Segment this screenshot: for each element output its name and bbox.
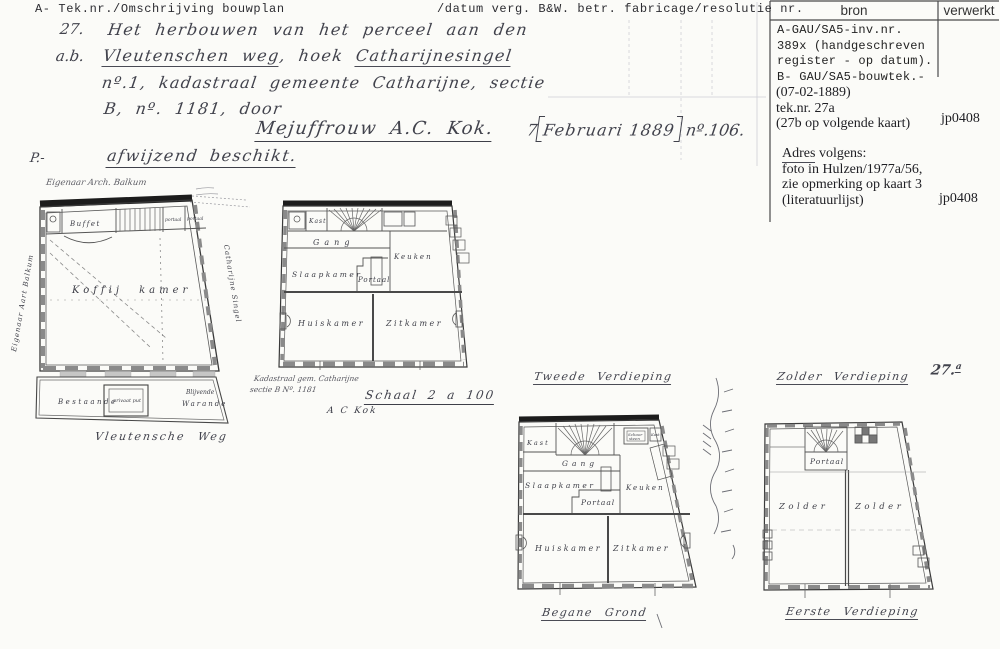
adres-line: zie opmerking op kaart 3 (782, 177, 922, 193)
kadaster-caption-1: Kadastraal gem. Catharijne (253, 374, 359, 383)
sheet-number-main: 27. (930, 363, 957, 379)
hw-line-2-middle: , hoek (278, 46, 357, 65)
room-label-koffijkamer: Koffij kamer (71, 285, 191, 296)
room-label-kast: Kast (308, 218, 327, 225)
owner-note: Eigenaar Arch. Balkum (45, 178, 147, 188)
room-label-blijvende: Blijvende (185, 389, 215, 396)
adres-note: Adres volgens: foto in Hulzen/1977a/56, … (782, 146, 922, 208)
verwerkt-code-1: jp0408 (941, 111, 980, 127)
bron-entry-b-line: tek.nr. 27a (776, 101, 910, 117)
marginal-scrawl (657, 378, 735, 628)
hw-underlined-street: Vleutenschen weg (101, 46, 281, 67)
scale-label: Schaal 2 a 100 (364, 388, 496, 405)
header-left: A- Tek.nr./Omschrijving bouwplan (35, 2, 285, 16)
hw-line-1: Het herbouwen van het perceel aan den (107, 20, 530, 39)
room-label-portaal-2: portaal (187, 216, 204, 222)
hw-verdict: afwijzend beschikt. (105, 146, 298, 168)
adres-suffix: volgens: (815, 146, 866, 161)
verwerkt-code-2: jp0408 (939, 191, 978, 207)
room-label-schoorsteen-2: steen (629, 436, 640, 441)
hw-line-2-prefix: a.b. (55, 47, 86, 65)
bron-entry-a-line: B- GAU/SA5-bouwtek.- (777, 70, 932, 86)
adres-line: foto in Hulzen/1977a/56, (782, 162, 922, 178)
room-label-portaal: Portaal (809, 457, 844, 466)
kadaster-caption-2: sectie B Nº. 1181 (249, 385, 317, 394)
margin-mark: P.- (29, 151, 46, 166)
hw-applicant-name: Mejuffrouw A.C. Kok. (254, 118, 495, 142)
bron-entry-a-line: A-GAU/SA5-inv.nr. (777, 23, 932, 39)
room-label-keuken: Keuken (625, 484, 665, 492)
faint-annotation-scrawl (190, 188, 250, 207)
room-label-portaal: Portaal (580, 498, 615, 507)
header-center: /datum verg. B&W. betr. fabricage/resolu… (437, 2, 804, 16)
adres-word: Adres (782, 146, 815, 163)
room-label-gang: Gang (562, 459, 598, 468)
room-label-kast-2: Kast (650, 432, 660, 437)
hw-line-3: nº.1, kadastraal gemeente Catharijne, se… (101, 73, 547, 92)
hw-date-group: 7Februari 1889 nº.106. (525, 118, 746, 144)
room-label-gang: Gang (313, 238, 354, 247)
plan-second-floor: Kast Schoor steen Kast Gang Slaapkamer P… (516, 417, 696, 596)
plan-title-ground: Begane Grond (541, 606, 648, 621)
room-label-slaapkamer: Slaapkamer (292, 270, 362, 279)
owner-side-note: Eigenaar Aart Balkum (10, 253, 35, 353)
plan-attic-floor: Portaal Zolder Zolder (763, 422, 933, 598)
room-label-portaal: Portaal (357, 276, 390, 284)
bron-entry-b: (07-02-1889) tek.nr. 27a (27b op volgend… (776, 85, 910, 132)
room-label-privaat-put: privaat put (113, 398, 142, 404)
adres-line: (literatuurlijst) (782, 193, 922, 209)
street-label: Vleutensche Weg (94, 430, 229, 443)
singel-street-label: Catharijne Singel (222, 244, 242, 323)
architect-signature: A C Kok (326, 406, 378, 416)
plan-first-floor: Kast Gang Slaapkamer Portaal Keuken Huis… (279, 203, 469, 370)
column-header-bron: bron (770, 3, 938, 18)
bron-entry-b-line: (27b op volgende kaart) (776, 116, 910, 132)
room-label-keuken: Keuken (393, 253, 433, 261)
hw-line-2: Vleutenschen weg, hoek Catharijnesingel (102, 46, 514, 65)
room-label-zitkamer: Zitkamer (612, 544, 670, 553)
plan-title-attic: Zolder Verdieping (776, 370, 910, 385)
bron-entry-a-line: 389x (handgeschreven (777, 39, 932, 55)
plan-title-first: Eerste Verdieping (785, 605, 920, 620)
room-label-zolder-2: Zolder (854, 502, 904, 512)
hw-date-text: Februari 1889 (542, 121, 676, 140)
room-label-huiskamer: Huiskamer (534, 544, 602, 553)
room-label-bestaande: Bestaande (57, 398, 118, 406)
room-label-kast: Kast (526, 439, 550, 447)
plan-title-second-floor: Tweede Verdieping (533, 370, 673, 385)
room-label-warande: Warande (182, 400, 227, 408)
hw-underlined-singel: Catharijnesingel (354, 46, 513, 67)
bron-entry-a-line: register - op datum). (777, 54, 932, 70)
sheet-number: 27.a (930, 362, 963, 379)
room-label-buffet: Buffet (69, 220, 101, 228)
room-label-zolder-1: Zolder (778, 502, 828, 512)
room-label-zitkamer: Zitkamer (385, 319, 443, 328)
column-header-verwerkt: verwerkt (938, 3, 1000, 18)
bron-entry-a: A-GAU/SA5-inv.nr. 389x (handgeschreven r… (777, 23, 932, 85)
archive-sheet: Buffet portaal portaal Koffij kamer Best… (0, 0, 1000, 649)
room-label-slaapkamer: Slaapkamer (525, 481, 595, 490)
plan-ground-floor: Buffet portaal portaal Koffij kamer Best… (10, 188, 250, 423)
hw-line-4: B, nº. 1181, door (103, 99, 284, 118)
room-label-portaal-1: portaal (165, 217, 182, 223)
room-label-huiskamer: Huiskamer (297, 319, 365, 328)
hw-item-number: 27. (59, 20, 85, 38)
hw-resolution-number: nº.106. (685, 121, 746, 140)
bron-entry-b-line: (07-02-1889) (776, 85, 910, 101)
